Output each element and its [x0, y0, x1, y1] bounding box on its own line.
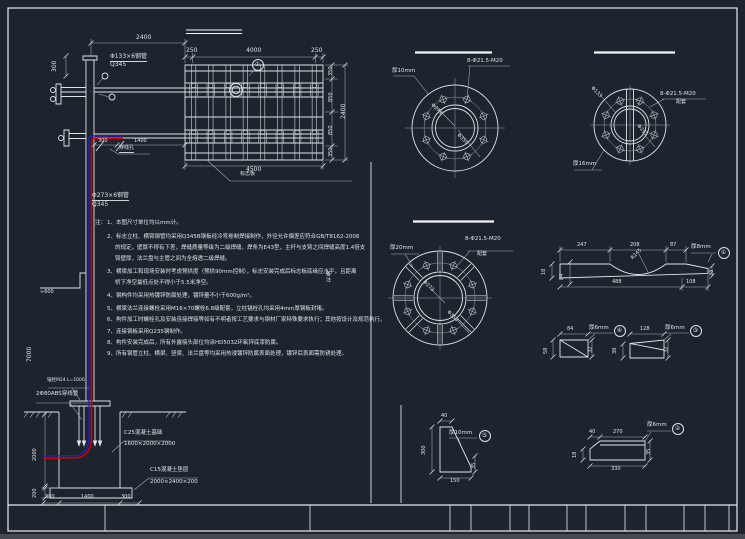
- d2-thickness: 厚6mm: [647, 423, 667, 429]
- d5-dim-b: 150: [450, 479, 460, 484]
- fdn-cushion-dim: 200: [33, 488, 38, 498]
- d5-thickness: 厚10mm: [449, 431, 472, 437]
- panel-dim-mid: 4000: [246, 48, 261, 54]
- d3-dim-t: 128: [640, 327, 650, 332]
- d1-dim-w1: 247: [577, 243, 587, 248]
- conduit-label: 2Φ80ABS穿线管: [36, 392, 78, 398]
- note-line: 6、构件加工时螺栓孔及安装连接焊接等如有不明者按工艺要求与钢材厂家特殊要求执行；…: [107, 318, 386, 324]
- wire-hole-label: 穿线孔: [119, 146, 134, 153]
- panel-side-total: 2400: [341, 104, 347, 119]
- arm-grade-label: Q345: [110, 62, 126, 68]
- d3-dim-l: 38: [613, 348, 618, 354]
- d1-dim-h1: 18: [542, 269, 547, 275]
- title-block-dividers: [105, 505, 729, 531]
- fdn-bottom-dim: 1400: [81, 495, 94, 500]
- panel-dim-right: 250: [311, 48, 322, 54]
- d1-dim-w3: 87: [670, 243, 676, 248]
- d1-dim-b2: 108: [686, 280, 696, 285]
- dim-top-left: 300: [52, 61, 58, 72]
- panel-name-label: 标志板: [240, 172, 255, 177]
- callout-balloon-1: ①: [252, 59, 264, 71]
- d4-thickness: 厚6mm: [589, 326, 609, 332]
- d4-dim-l: 58: [544, 348, 549, 354]
- fdn-bottom-dim: 300: [121, 495, 131, 500]
- ground-hatch: [24, 412, 182, 418]
- fdn-depth-dim: 2000: [33, 448, 38, 461]
- d2-balloon: ②: [672, 423, 684, 435]
- note-line: 8、构件安装完成后，所有外露接头部位均涂HD5032环氧锌底漆防腐。: [107, 341, 281, 347]
- dim-top-span: 2400: [136, 35, 151, 41]
- note-line: 5、横梁法兰连接螺栓采用M16×70螺栓6.8级配套，立柱锚栓孔均采用4mm厚钢…: [107, 307, 327, 313]
- base-name-label: C25混凝土基础: [124, 431, 162, 437]
- flange-a-thickness: 厚10mm: [392, 69, 415, 75]
- panel-dim-left: 250: [186, 48, 197, 54]
- d5-dim-r: 35: [472, 463, 477, 469]
- anchor-label: 锚栓M24 L=1000: [47, 379, 85, 384]
- d2-dim-t1: 40: [589, 430, 595, 435]
- d2-dim-r: 35: [647, 449, 652, 455]
- flange-b-holes2: 配套: [676, 100, 686, 105]
- note-line: 3、横梁加工和现场安装时考虑预拱度（预拱90mm控制），标志安装完成后标志板底缘…: [107, 270, 356, 276]
- cushion-size-label: 2000×2400×200: [150, 480, 198, 486]
- panel-side-dim: 350: [329, 66, 334, 76]
- d2-dim-b: 330: [611, 467, 621, 472]
- pole-height-dim: 7000: [27, 347, 33, 362]
- flange-b-holes: 8-Φ21.5-M20: [660, 92, 696, 98]
- note-line: 9、所有钢管立柱、横梁、竖梁、法兰盘等均采用热浸镀锌防腐表面处理，镀锌后表面需防…: [107, 352, 347, 358]
- d2-dim-t2: 270: [613, 430, 623, 435]
- note-line: 臂壁厚，法兰盘与主管之间为全熔透二级焊缝。: [115, 257, 231, 263]
- flange-b-thickness: 厚16mm: [573, 162, 596, 168]
- side-note: 备注: [325, 271, 330, 283]
- d1-dim-h3: 38: [710, 270, 715, 276]
- note-line: 桥下净空最低点处不得小于5.5米净空。: [115, 281, 212, 287]
- d4-dim-r: 32: [589, 347, 594, 353]
- flange-c-thickness: 厚20mm: [390, 246, 413, 252]
- signboard-stiffeners: [190, 65, 318, 160]
- base-size-label: 1600×2000×2000: [124, 442, 175, 448]
- flange-a-holes: 8-Φ21.5-M20: [467, 59, 503, 65]
- d1-thickness: 厚8mm: [691, 245, 711, 251]
- panel-side-dim: 850: [329, 92, 334, 102]
- note-line: 4、钢构件均采用热镀锌防腐处理，镀锌量不小于600g/m²。: [107, 294, 255, 300]
- d5-dim-t: 40: [441, 414, 447, 419]
- d4-balloon: ④: [614, 325, 626, 337]
- flange-views: [388, 78, 670, 350]
- d3-dim-r: 32: [665, 347, 670, 353]
- cushion-name-label: C15混凝土垫层: [150, 468, 188, 474]
- note-line: 2、标志立柱、横臂钢管均采用Q345B钢板经冷弯卷制焊接制作，外径允许偏差应符合…: [107, 235, 359, 241]
- pole-spec-label: Φ273×6钢管: [92, 193, 129, 201]
- d3-thickness: 厚6mm: [665, 326, 685, 332]
- d3-balloon: ③: [690, 325, 702, 337]
- ground-offset-label: ≈600: [40, 290, 54, 295]
- pole-grade-label: Q345: [92, 202, 108, 208]
- panel-side-dim: 850: [329, 125, 334, 135]
- fdn-bottom-dim: 300: [45, 495, 55, 500]
- d1-dim-b1: 488: [612, 280, 622, 285]
- notes-title: 注：: [95, 221, 106, 227]
- d1-balloon: ①: [718, 247, 730, 259]
- d1-dim-h2: 84: [560, 274, 565, 280]
- window-bottom-edge: [0, 534, 745, 539]
- flange-c-holes2: 配套: [477, 252, 487, 257]
- d4-dim-t: 84: [567, 327, 573, 332]
- note-line: 7、连接钢板采用Q235钢制作。: [107, 330, 186, 336]
- d2-dim-l: 18: [573, 452, 578, 458]
- panel-side-dim: 350: [329, 147, 334, 157]
- flange-c-holes: 8-Φ21.5-M20: [465, 237, 501, 243]
- d5-balloon: ⑤: [479, 430, 491, 442]
- note-line: 1、本图尺寸单位均以mm计。: [107, 221, 182, 227]
- cad-drawing-canvas: 2400 300 Φ133×6钢管 Q345 250 4000 250 350 …: [0, 0, 745, 539]
- arm-dim-a: 300: [98, 139, 108, 144]
- note-line: 的规定，壁厚不得有下差，焊缝质量等级为二级焊缝，焊条为E43型，主杆与支臂之间焊…: [115, 246, 365, 252]
- d5-dim-l: 300: [422, 445, 427, 455]
- arm-dim-b: 1400: [134, 139, 147, 144]
